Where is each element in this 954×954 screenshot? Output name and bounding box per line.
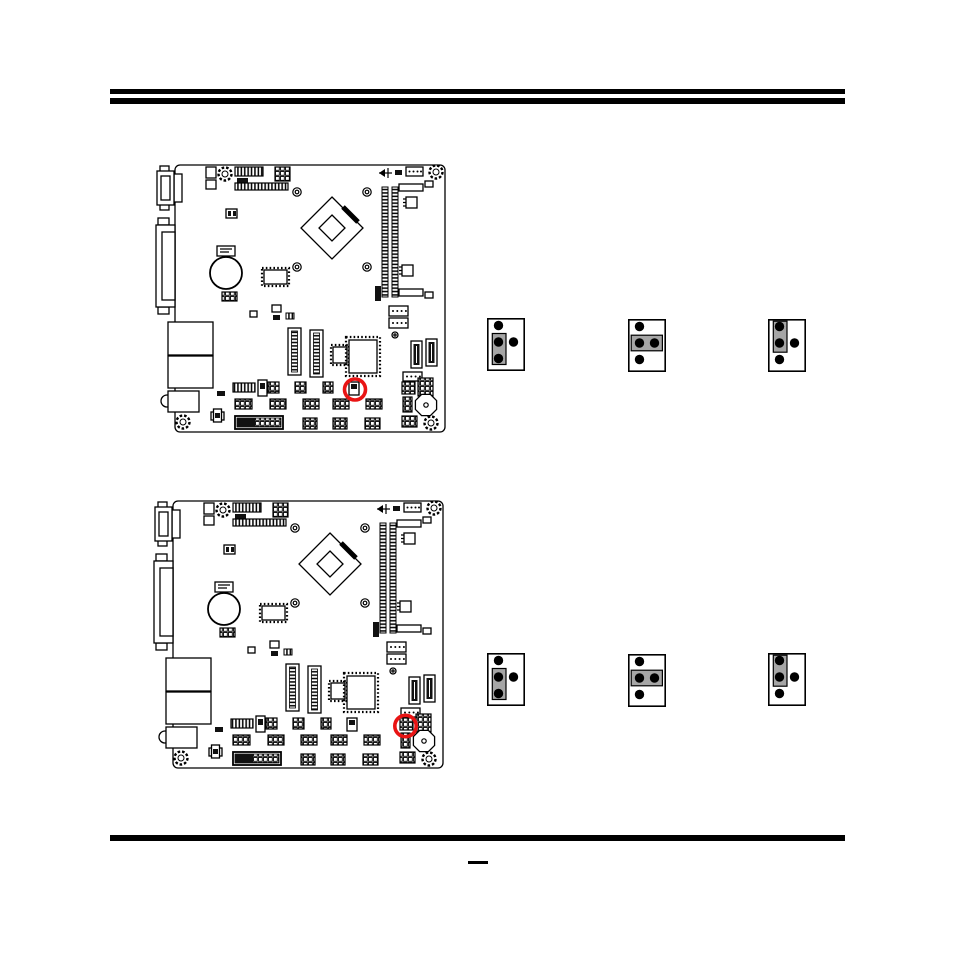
jumper-setting-diagram-1-3	[768, 319, 806, 372]
jumper-setting-diagram-1-2	[628, 319, 666, 372]
jumper-setting-diagram-2-1	[487, 653, 525, 706]
jumper-setting-diagram-1-1	[487, 318, 525, 371]
header-rule-1	[110, 89, 845, 94]
jumper-setting-diagram-2-3	[768, 653, 806, 706]
header-rule-2	[110, 98, 845, 104]
motherboard-diagram-1	[155, 161, 451, 437]
motherboard-diagram-2	[153, 497, 449, 773]
footer-rule	[110, 835, 845, 841]
jumper-setting-diagram-2-2	[628, 654, 666, 707]
page-number-dash	[468, 861, 488, 864]
